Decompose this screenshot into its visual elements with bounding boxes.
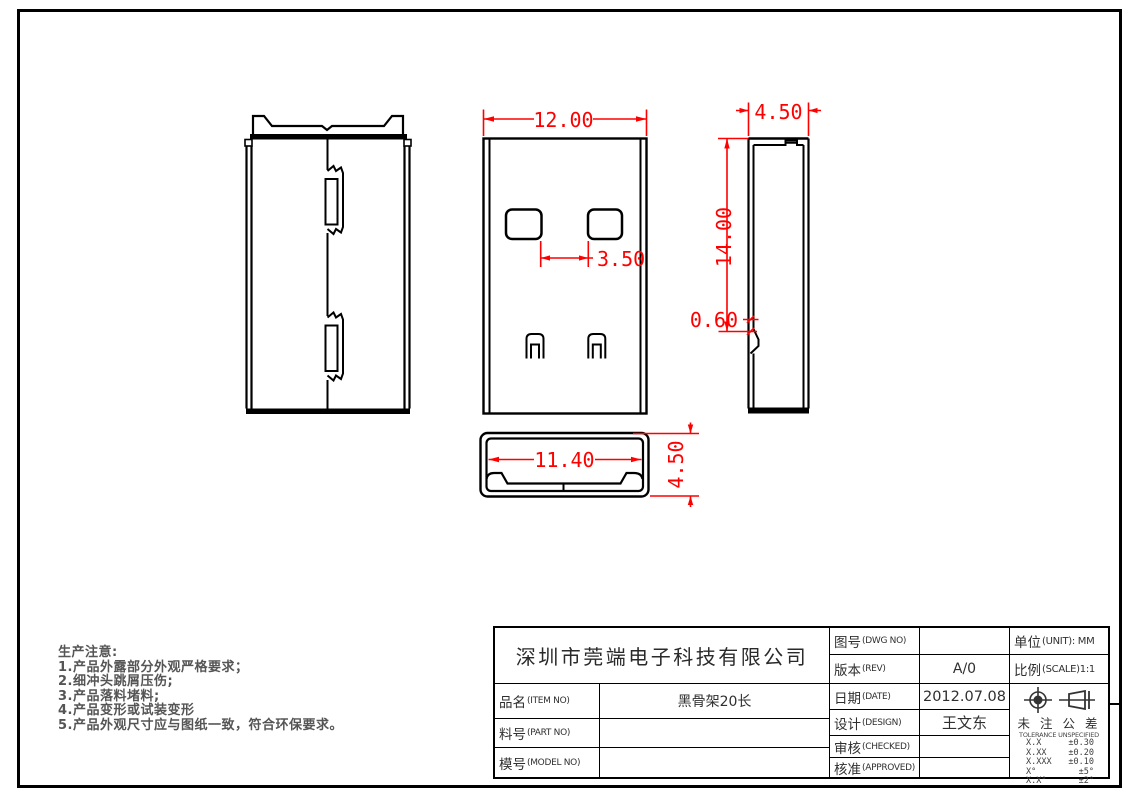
side-top-notch bbox=[754, 141, 804, 146]
rear-bottom-fold bbox=[246, 409, 410, 415]
company-name: 深圳市莞端电子科技有限公司 bbox=[495, 628, 830, 684]
design-label: 设计(DESIGN) bbox=[830, 710, 920, 736]
note-line: 5.产品外观尺寸应与图纸一致，符合环保要求。 bbox=[58, 719, 378, 734]
rear-top-cap bbox=[253, 116, 403, 137]
rear-latch-lower bbox=[326, 326, 338, 372]
front-view bbox=[484, 139, 647, 414]
item-no-label: 品名(ITEM NO) bbox=[495, 684, 600, 719]
dim-bottom-height-label: 4.50 bbox=[664, 440, 688, 488]
scale-label: 比例(SCALE)1:1 bbox=[1010, 655, 1108, 684]
front-lance-right bbox=[588, 334, 605, 359]
rear-view bbox=[245, 116, 411, 414]
side-inner-walls bbox=[754, 145, 804, 409]
rev-label: 版本(REV) bbox=[830, 655, 920, 684]
dwg-no-label: 图号(DWG NO) bbox=[830, 628, 920, 655]
unit-label: 单位(UNIT): MM bbox=[1010, 628, 1108, 655]
item-no-value: 黑骨架20长 bbox=[600, 684, 830, 719]
rear-corner-tab-right bbox=[404, 140, 411, 147]
front-outline bbox=[484, 139, 647, 414]
note-line: 2.细冲头跳屑压伤; bbox=[58, 675, 378, 690]
dim-side-height: 14.00 bbox=[712, 139, 749, 332]
note-line: 1.产品外露部分外观严格要求； bbox=[58, 661, 378, 676]
checked-value bbox=[920, 736, 1010, 758]
rear-top-fold bbox=[250, 134, 407, 140]
rev-value: A/0 bbox=[920, 655, 1010, 684]
dim-hole-gap-label: 3.50 bbox=[597, 247, 645, 271]
model-no-value bbox=[600, 748, 830, 777]
date-value: 2012.07.08 bbox=[920, 684, 1010, 710]
date-label: 日期(DATE) bbox=[830, 684, 920, 710]
front-hole-right bbox=[588, 210, 622, 240]
front-inner-walls bbox=[490, 139, 641, 414]
dimensions: 12.00 3.50 4.50 14.00 bbox=[484, 100, 822, 507]
approved-label: 核准(APPROVED) bbox=[830, 758, 920, 777]
front-lance-left bbox=[527, 334, 544, 359]
projection-symbols bbox=[1023, 687, 1095, 713]
tolerance-table: X.X±0.30 X.XX±0.20 X.XXX±0.10 X°±5° X.X°… bbox=[1016, 739, 1102, 787]
tolerance-title: 未 注 公 差 bbox=[1018, 713, 1101, 732]
side-outer-walls bbox=[749, 139, 809, 409]
design-value: 王文东 bbox=[920, 710, 1010, 736]
rear-latch-upper bbox=[326, 179, 338, 225]
projection-target-icon bbox=[1023, 687, 1053, 713]
notes-title: 生产注意: bbox=[58, 646, 378, 661]
dim-side-height-label: 14.00 bbox=[712, 207, 736, 267]
dim-bottom-inner-width: 11.40 bbox=[489, 448, 642, 472]
dim-front-width-label: 12.00 bbox=[533, 108, 593, 132]
model-no-label: 模号(MODEL NO) bbox=[495, 748, 600, 777]
rear-corner-tab-left bbox=[245, 140, 252, 147]
tolerance-box-tick bbox=[1110, 703, 1122, 705]
approved-value bbox=[920, 758, 1010, 777]
tolerance-box: 未 注 公 差 TOLERANCE UNSPECIFIED X.X±0.30 X… bbox=[1010, 684, 1108, 777]
dim-hole-gap: 3.50 bbox=[541, 241, 645, 271]
dim-side-width: 4.50 bbox=[736, 100, 821, 136]
dim-lance-offset-label: 0.60 bbox=[690, 308, 738, 332]
title-block: 深圳市莞端电子科技有限公司 品名(ITEM NO) 黑骨架20长 料号(PART… bbox=[493, 626, 1110, 779]
dim-front-width: 12.00 bbox=[484, 108, 647, 136]
side-bottom-fold bbox=[748, 408, 809, 414]
side-view bbox=[748, 139, 809, 414]
side-lance-tab bbox=[751, 329, 759, 354]
tolerance-row: X.X°±2° bbox=[1016, 777, 1102, 787]
part-no-value bbox=[600, 719, 830, 748]
bottom-shell-profile bbox=[487, 473, 643, 484]
dwg-no-value bbox=[920, 628, 1010, 655]
dim-bottom-inner-width-label: 11.40 bbox=[534, 448, 594, 472]
checked-label: 审核(CHECKED) bbox=[830, 736, 920, 758]
part-no-label: 料号(PART NO) bbox=[495, 719, 600, 748]
note-line: 4.产品变形或试装变形 bbox=[58, 704, 378, 719]
drawing-sheet: 12.00 3.50 4.50 14.00 bbox=[0, 0, 1131, 802]
front-hole-left bbox=[506, 210, 542, 240]
dim-side-width-label: 4.50 bbox=[754, 100, 802, 124]
projection-cone-icon bbox=[1059, 690, 1095, 710]
production-notes: 生产注意: 1.产品外露部分外观严格要求； 2.细冲头跳屑压伤; 3.产品落料堵… bbox=[58, 646, 378, 734]
